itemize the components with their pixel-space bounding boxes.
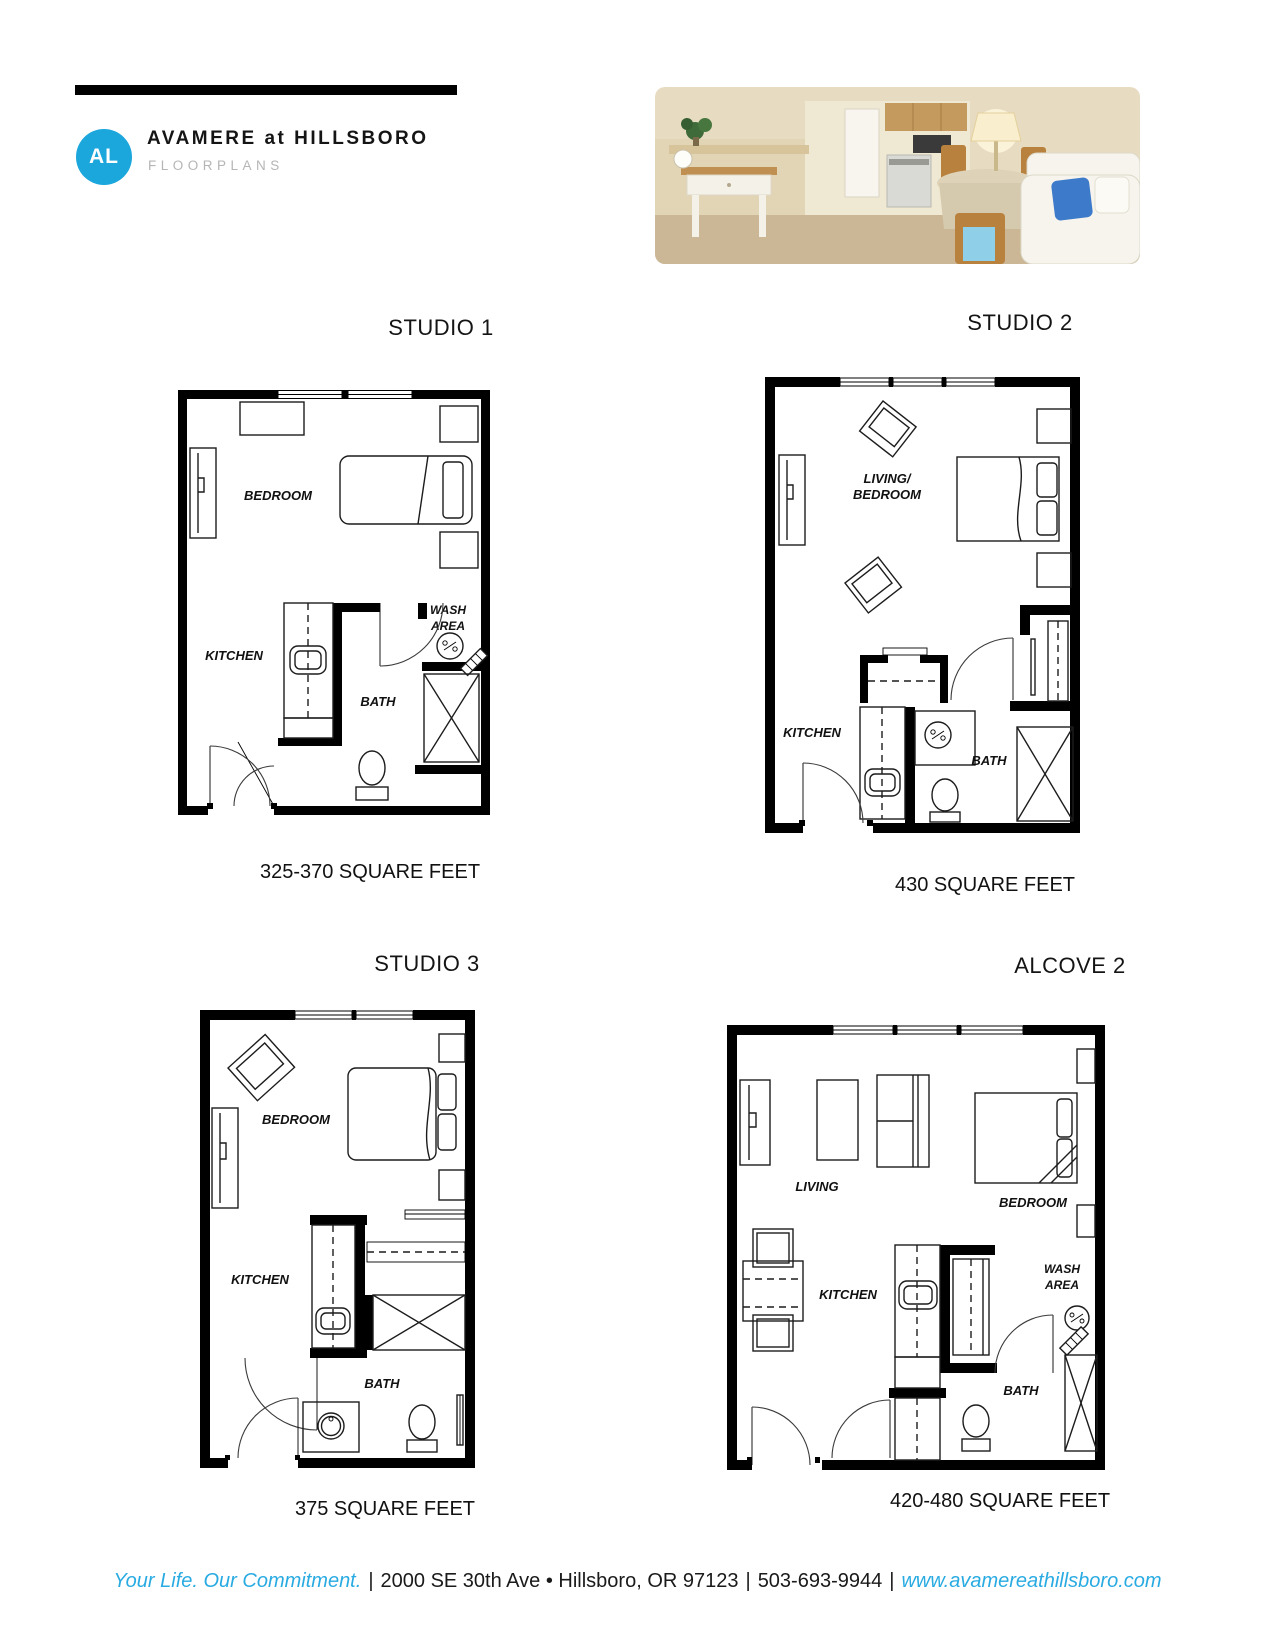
footer-separator: | [745,1570,750,1592]
closet-rod [367,1242,465,1262]
wash-closet [1031,621,1068,701]
bath-sink [303,1402,359,1452]
room-label-bedroom: BEDROOM [244,488,313,503]
armchair [860,401,916,457]
tv-cabinet [212,1108,238,1208]
closet [373,1295,465,1350]
logo-text: AL [89,145,119,169]
room-label-bath: BATH [360,694,396,709]
sqft-alcove-2: 420-480 SQUARE FEET [850,1490,1150,1513]
nightstand [1077,1049,1095,1083]
sqft-studio-1: 325-370 SQUARE FEET [220,861,520,884]
kitchen-counter [860,707,905,819]
bed [348,1068,456,1160]
kitchen-counter [312,1225,355,1348]
wash-sink [1065,1306,1089,1330]
floorplan-studio-3: BEDROOM KITCHEN BATH [200,1010,475,1468]
footer: Your Life. Our Commitment.|2000 SE 30th … [0,1570,1275,1593]
bed [957,457,1059,541]
walls [200,1010,475,1468]
walls [727,1025,1105,1470]
room-label-living-bedroom: BEDROOM [853,487,922,502]
entry-door [207,742,277,809]
pantry-closet [953,1259,989,1355]
bed [975,1093,1077,1183]
laundry-hamper [1060,1327,1088,1355]
closet [424,674,479,762]
bath-sink [915,711,975,765]
bath-door [245,1358,317,1430]
upper-cabinets [885,103,967,131]
nightstand [1037,409,1071,443]
footer-address: 2000 SE 30th Ave • Hillsboro, OR 97123 [381,1570,739,1592]
entry-door [799,763,873,826]
footer-tagline: Your Life. Our Commitment. [113,1570,361,1592]
plan-title-studio-3: STUDIO 3 [327,951,527,977]
window [840,378,995,386]
armchair [845,557,901,613]
apartment-photo [655,87,1140,264]
kitchen-counter [895,1245,940,1460]
window [833,1026,1023,1034]
plan-title-studio-2: STUDIO 2 [920,310,1120,336]
nightstand [439,1170,465,1200]
room-label-kitchen: KITCHEN [231,1272,289,1287]
nightstand [440,406,478,442]
wash-sink [437,633,463,659]
room-label-living: LIVING [795,1179,838,1194]
dining-set [743,1229,803,1351]
footer-phone: 503-693-9944 [758,1570,883,1592]
room-label-bath: BATH [1003,1383,1039,1398]
armchair [228,1035,295,1101]
header-rule [75,85,457,95]
footer-separator: | [889,1570,894,1592]
shelf [405,1210,465,1219]
toilet [407,1405,437,1452]
wall-door-leaf [457,1395,463,1445]
room-label-wash: WASH [1044,1262,1080,1276]
coffee-table [817,1080,858,1160]
tv-cabinet [190,448,216,538]
dresser [1077,1205,1095,1237]
room-label-bath: BATH [364,1376,400,1391]
floorplan-studio-2: LIVING/ BEDROOM KITCHEN BATH [765,377,1080,833]
tv-cabinet [740,1080,770,1165]
entry-door [747,1407,820,1465]
toilet [356,751,388,800]
toilet [962,1405,990,1451]
page: { "header": { "logo_text": "AL", "logo_c… [0,0,1275,1651]
logo-badge: AL [76,129,132,185]
room-label-bedroom: BEDROOM [262,1112,331,1127]
toilet [930,779,960,822]
sqft-studio-2: 430 SQUARE FEET [835,874,1135,897]
floorplan-studio-1: BEDROOM KITCHEN WASH AREA BATH [178,390,490,815]
footer-website-link[interactable]: www.avamereathillsboro.com [901,1570,1161,1592]
entry-door [225,1398,300,1460]
bath-door [832,1400,890,1458]
room-label-kitchen: KITCHEN [783,725,841,740]
sofa [877,1075,929,1167]
dresser [240,402,304,435]
sqft-studio-3: 375 SQUARE FEET [235,1498,535,1521]
brand-subtitle: FLOORPLANS [148,158,284,173]
hall-closet [868,648,940,681]
footer-separator: | [368,1570,373,1592]
nightstand [439,1034,465,1062]
sofa [1021,153,1140,264]
room-label-bath: BATH [971,753,1007,768]
plan-title-alcove-2: ALCOVE 2 [960,953,1180,979]
closet [1065,1355,1097,1451]
room-label-bedroom: BEDROOM [999,1195,1068,1210]
fridge [845,109,879,197]
nightstand [1037,553,1071,587]
bed [340,456,472,524]
brand-title: AVAMERE at HILLSBORO [147,128,429,150]
closet [1017,727,1073,821]
plan-title-studio-1: STUDIO 1 [341,315,541,341]
blue-pillow [1051,177,1094,221]
room-label-wash-area: AREA [430,619,465,633]
room-label-wash-area: AREA [1044,1278,1079,1292]
wash-door [995,1315,1053,1373]
floorplan-alcove-2: LIVING BEDROOM KITCHEN WASH AREA [727,1025,1105,1470]
room-label-kitchen: KITCHEN [819,1287,877,1302]
kitchen-counter [284,603,333,738]
tv-cabinet [779,455,805,545]
room-label-living: LIVING/ [864,471,912,486]
apartment-photo-illustration [655,87,1140,264]
clock [674,150,692,168]
dining-chair-front [955,213,1005,264]
nightstand [440,532,478,568]
room-label-kitchen: KITCHEN [205,648,263,663]
room-label-wash: WASH [430,603,466,617]
bath-door [951,638,1013,700]
